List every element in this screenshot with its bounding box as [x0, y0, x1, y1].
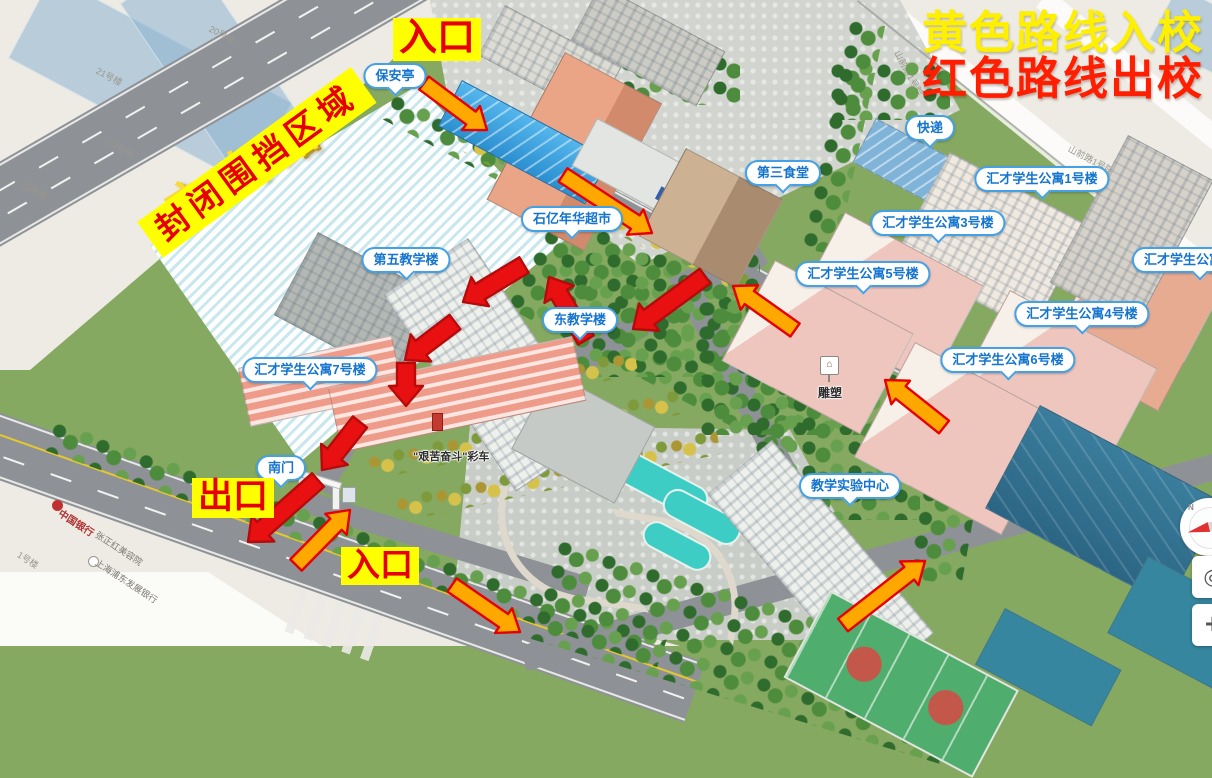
map-label-apt5[interactable]: 汇才学生公寓5号楼: [795, 261, 930, 287]
map-label-security-booth[interactable]: 保安亭: [363, 63, 426, 89]
map-canvas[interactable]: { "legend": { "line1": "黄色路线入校", "line2"…: [0, 0, 1212, 646]
map-label-experiment-center[interactable]: 教学实验中心: [799, 473, 901, 499]
entrance-tag-top: 入口: [393, 18, 481, 61]
exit-tag: 出口: [192, 478, 274, 518]
route-arrow-exit: [388, 363, 424, 406]
locate-button[interactable]: ◎: [1192, 556, 1212, 598]
map-label-apt1[interactable]: 汇才学生公寓1号楼: [974, 166, 1109, 192]
map-label-canteen3[interactable]: 第三食堂: [745, 160, 821, 186]
route-legend: 黄色路线入校 红色路线出校: [922, 10, 1204, 102]
parade-float-label: "艰苦奋斗"彩车: [413, 448, 489, 464]
compass-north-label: N: [1188, 503, 1194, 512]
parade-float: [432, 413, 443, 431]
map-label-express[interactable]: 快递: [905, 115, 955, 141]
zoom-in-button[interactable]: +: [1192, 604, 1212, 646]
map-label-apt7[interactable]: 汇才学生公寓7号楼: [242, 357, 377, 383]
map-label-apt2[interactable]: 汇才学生公寓2号楼: [1132, 247, 1212, 273]
south-gate-booth: [342, 487, 356, 503]
map-label-apt6[interactable]: 汇才学生公寓6号楼: [940, 347, 1075, 373]
entrance-tag-bottom: 入口: [341, 547, 419, 585]
legend-enter-line: 黄色路线入校: [922, 10, 1204, 56]
map-label-apt4[interactable]: 汇才学生公寓4号楼: [1014, 301, 1149, 327]
map-label-east-teaching[interactable]: 东教学楼: [542, 307, 618, 333]
map-label-supermarket[interactable]: 石亿年华超市: [521, 206, 623, 232]
sculpture-icon: ⌂: [820, 356, 839, 375]
map-label-teach5[interactable]: 第五教学楼: [361, 247, 450, 273]
map-label-apt3[interactable]: 汇才学生公寓3号楼: [870, 210, 1005, 236]
sculpture-label: 雕塑: [818, 384, 842, 401]
legend-exit-line: 红色路线出校: [922, 56, 1204, 102]
